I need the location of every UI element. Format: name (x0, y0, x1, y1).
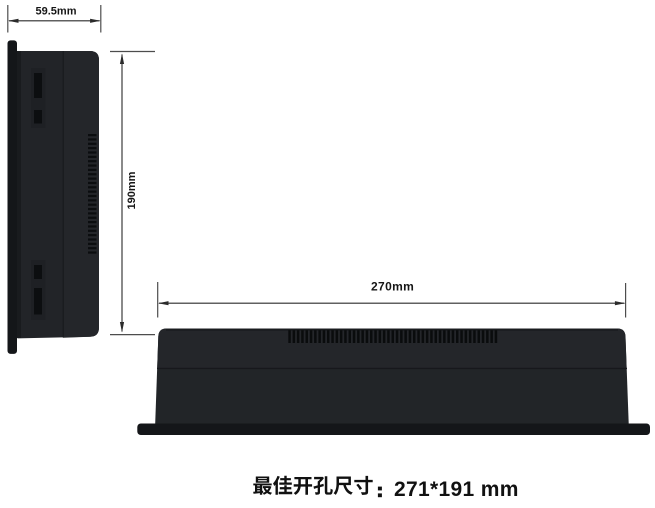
svg-text:59.5mm: 59.5mm (36, 6, 77, 18)
svg-text:270mm: 270mm (371, 280, 414, 294)
svg-text:190mm: 190mm (126, 171, 138, 209)
svg-text:271*191 mm: 271*191 mm (394, 478, 519, 501)
